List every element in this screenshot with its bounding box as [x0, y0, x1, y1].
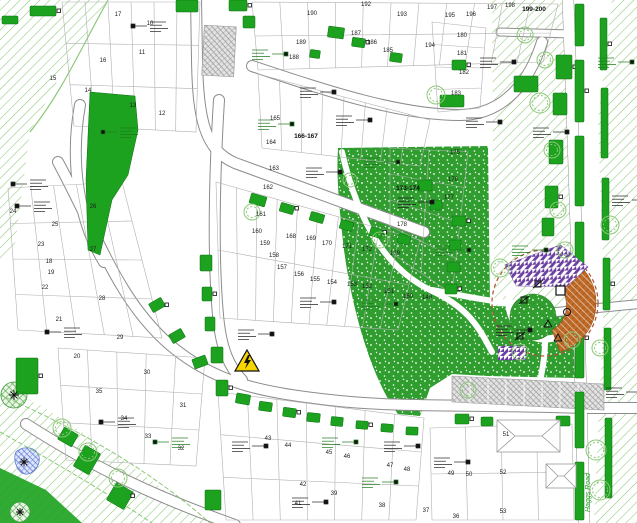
label-marker-square: [264, 444, 268, 448]
shrub-mix-marker: [39, 374, 43, 378]
label-marker-square: [430, 200, 434, 204]
plot-number-label: 169: [306, 236, 317, 242]
plot-number-label: 159: [260, 241, 271, 247]
label-marker-square: [45, 330, 49, 334]
plot-number-label: 19: [48, 270, 55, 276]
play-equipment-icon: [519, 296, 529, 304]
planting-bed: [406, 427, 418, 435]
label-marker-square: [394, 302, 398, 306]
plot-number-label: 163: [269, 166, 280, 172]
plot-number-label: 192: [361, 2, 372, 8]
planting-bed: [556, 55, 572, 79]
plot-number-label: 175: [450, 150, 461, 156]
plot-number-label: 194: [425, 43, 436, 49]
plot-number-label: 152: [362, 284, 373, 290]
plot-number-label: 52: [500, 470, 507, 476]
plot-number-label: 32: [178, 446, 185, 452]
label-marker-square: [101, 130, 105, 134]
plot-number-label: 12: [159, 111, 166, 117]
plot-number-label: 28: [99, 296, 106, 302]
plot-number-label: 180: [457, 33, 468, 39]
planting-bed: [216, 380, 228, 396]
plot-number-label: 21: [56, 317, 63, 323]
plot-number-label: 149: [422, 295, 433, 301]
road-name-label: Haggs Road: [585, 472, 592, 512]
plot-number-label: 187: [351, 31, 362, 37]
shrub-mix-marker: [369, 423, 373, 427]
shrub-mix-marker: [229, 386, 233, 390]
plot-number-label: 154: [327, 280, 338, 286]
label-marker-square: [396, 160, 400, 164]
plot-number-label: 155: [310, 277, 321, 283]
label-marker-square: [368, 118, 372, 122]
plot-number-label: 151: [384, 289, 395, 295]
shrub-mix-marker: [467, 63, 471, 67]
plot-number-label: 170: [322, 241, 333, 247]
label-marker-square: [565, 130, 569, 134]
planting-bed: [205, 317, 215, 331]
plot-number-label: 189: [296, 40, 307, 46]
label-marker-square: [284, 52, 288, 56]
plot-number-label: 181: [457, 51, 468, 57]
plot-number-label: 49: [448, 471, 455, 477]
plot-number-label: 156: [294, 272, 305, 278]
planting-bed: [575, 4, 584, 46]
planting-bed: [449, 240, 461, 250]
planting-bed: [418, 180, 432, 191]
planting-bed: [351, 37, 365, 48]
plot-number-label: 171: [342, 244, 353, 250]
plot-number-label: 53: [500, 509, 507, 515]
label-marker-square: [15, 204, 19, 208]
plot-number-label: 164: [266, 140, 277, 146]
plot-number-label: 47: [387, 463, 394, 469]
plot-number-label: 29: [117, 335, 124, 341]
shrub-mix-marker: [213, 292, 217, 296]
plot-number-label: 190: [307, 11, 318, 17]
planting-bed: [356, 421, 369, 430]
plot-number-label: 43: [265, 436, 272, 442]
shrub-mix-marker: [57, 9, 61, 13]
planting-bed: [176, 0, 198, 12]
planting-bed: [331, 416, 344, 426]
plot-number-label: 18: [46, 259, 53, 265]
plot-number-label: 153: [347, 282, 358, 288]
planting-bed: [229, 0, 247, 11]
plot-number-label: 31: [180, 403, 187, 409]
plot-number-label: 25: [52, 222, 59, 228]
plot-number-label: 30: [144, 370, 151, 376]
planting-bed: [235, 393, 251, 405]
plot-range-label: 199-200: [522, 6, 546, 13]
plot-number-label: 161: [256, 212, 267, 218]
label-marker-square: [131, 24, 135, 28]
shrub-mix-marker: [608, 42, 612, 46]
plot-number-label: 34: [121, 416, 128, 422]
planting-bed: [205, 490, 221, 510]
plot-number-label: 20: [74, 354, 81, 360]
shrub-mix-marker: [585, 89, 589, 93]
plot-number-label: 15: [50, 76, 57, 82]
label-marker-square: [153, 440, 157, 444]
plot-number-label: 179: [390, 251, 401, 257]
plot-number-label: 193: [397, 12, 408, 18]
planting-bed: [455, 414, 469, 424]
plot-number-label: 182: [459, 70, 470, 76]
plot-number-label: 26: [90, 204, 97, 210]
plot-number-label: 51: [503, 432, 510, 438]
planting-bed: [200, 255, 212, 271]
plot-number-label: 162: [263, 185, 274, 191]
label-marker-square: [528, 328, 532, 332]
shrub-mix-marker: [131, 494, 135, 498]
play-equipment-icon: [533, 280, 543, 288]
plot-number-label: 183: [451, 91, 462, 97]
label-marker-square: [338, 170, 342, 174]
site-plan-canvas: 1011121314151617181920212223242526272829…: [0, 0, 637, 523]
planting-bed: [327, 26, 344, 39]
existing-tree-icon: [9, 390, 19, 400]
label-marker-square: [354, 440, 358, 444]
plot-number-label: 14: [85, 88, 92, 94]
plot-number-label: 48: [404, 467, 411, 473]
shrub-mix-marker: [559, 195, 563, 199]
planting-bed: [381, 424, 394, 433]
plot-number-label: 33: [145, 434, 152, 440]
planting-bed: [2, 16, 18, 24]
plot-number-label: 186: [367, 40, 378, 46]
plot-range-label: 166-167: [294, 133, 318, 140]
plot-number-label: 35: [96, 389, 103, 395]
plot-number-label: 46: [344, 454, 351, 460]
play-equipment-square-icon: [556, 286, 565, 295]
existing-tree-icon: [16, 508, 24, 516]
planting-bed: [445, 284, 457, 294]
plot-number-label: 198: [505, 3, 516, 9]
plot-number-label: 177: [444, 195, 455, 201]
plot-number-label: 185: [383, 48, 394, 54]
planting-bed: [601, 88, 608, 158]
plot-number-label: 10: [147, 21, 154, 27]
plot-number-label: 172: [362, 247, 373, 253]
planting-bed: [307, 412, 321, 422]
label-marker-square: [466, 460, 470, 464]
plot-number-label: 197: [487, 5, 498, 11]
planting-bed: [452, 216, 466, 226]
planting-bed: [600, 18, 607, 70]
planting-bed: [447, 262, 460, 272]
planting-bed: [258, 401, 272, 412]
plot-number-label: 36: [453, 514, 460, 520]
plot-number-label: 158: [269, 253, 280, 259]
label-marker-square: [332, 300, 336, 304]
shrub-mix-marker: [467, 219, 471, 223]
planting-bed: [481, 417, 493, 426]
plot-number-label: 42: [300, 482, 307, 488]
shrub-mix-marker: [295, 207, 299, 211]
label-marker-square: [512, 60, 516, 64]
plot-number-label: 22: [42, 285, 49, 291]
plot-number-label: 50: [466, 472, 473, 478]
plot-number-label: 150: [403, 294, 414, 300]
shrub-mix-marker: [297, 411, 301, 415]
planting-bed: [30, 6, 56, 16]
label-marker-square: [332, 90, 336, 94]
planting-bed: [211, 347, 223, 363]
planting-bed: [243, 16, 255, 28]
planting-bed: [202, 287, 212, 301]
plot-number-label: 157: [277, 265, 288, 271]
plot-number-label: 37: [423, 508, 430, 514]
plot-number-label: 165: [270, 116, 281, 122]
label-marker-square: [290, 122, 294, 126]
label-marker-square: [467, 248, 471, 252]
plot-number-label: 16: [100, 58, 107, 64]
plot-number-label: 38: [379, 503, 386, 509]
planting-bed: [575, 136, 584, 206]
label-marker-square: [416, 444, 420, 448]
planting-bed: [553, 93, 567, 115]
label-marker-square: [544, 248, 548, 252]
planting-bed: [575, 60, 584, 122]
label-marker-square: [270, 332, 274, 336]
label-marker-square: [630, 60, 634, 64]
plot-number-label: 176: [448, 177, 459, 183]
plot-number-label: 196: [466, 12, 477, 18]
plot-number-label: 160: [252, 229, 263, 235]
label-marker-square: [394, 480, 398, 484]
label-marker-square: [99, 420, 103, 424]
plot-number-label: 23: [38, 242, 45, 248]
planting-bed: [603, 258, 610, 310]
planting-bed: [16, 358, 38, 394]
planting-bed: [542, 218, 554, 236]
plot-number-label: 195: [445, 13, 456, 19]
shrub-mix-marker: [458, 287, 462, 291]
plot-number-label: 45: [326, 450, 333, 456]
plot-number-label: 178: [397, 222, 408, 228]
plot-number-label: 39: [331, 491, 338, 497]
planting-bed: [309, 49, 320, 58]
play-equipment-icon: [515, 332, 525, 340]
label-marker-square: [324, 500, 328, 504]
hip-roof-building: [546, 464, 576, 488]
planting-bed: [282, 407, 296, 418]
planting-bed: [604, 328, 611, 390]
plot-number-label: 188: [289, 55, 300, 61]
plot-number-label: 27: [90, 247, 97, 253]
plot-number-label: 13: [130, 103, 137, 109]
plot-number-label: 44: [285, 443, 292, 449]
plot-number-label: 17: [115, 12, 122, 18]
plot-number-label: 41: [295, 501, 302, 507]
plot-number-label: 11: [139, 50, 146, 56]
shrub-mix-marker: [165, 303, 169, 307]
site-plan-viewport[interactable]: 1011121314151617181920212223242526272829…: [0, 0, 637, 523]
plot-number-label: 24: [10, 209, 17, 215]
planting-bed: [575, 392, 584, 448]
planting-bed: [514, 76, 538, 92]
label-marker-square: [11, 182, 15, 186]
shrub-mix-marker: [470, 417, 474, 421]
planting-bed: [452, 60, 466, 70]
plot-number-label: 168: [286, 234, 297, 240]
label-marker-square: [498, 120, 502, 124]
shrub-mix-marker: [248, 4, 252, 8]
planting-bed: [605, 418, 612, 498]
plot-range-label: 173-174: [396, 185, 420, 192]
existing-tree-icon: [20, 458, 29, 467]
shrub-mix-marker: [611, 282, 615, 286]
